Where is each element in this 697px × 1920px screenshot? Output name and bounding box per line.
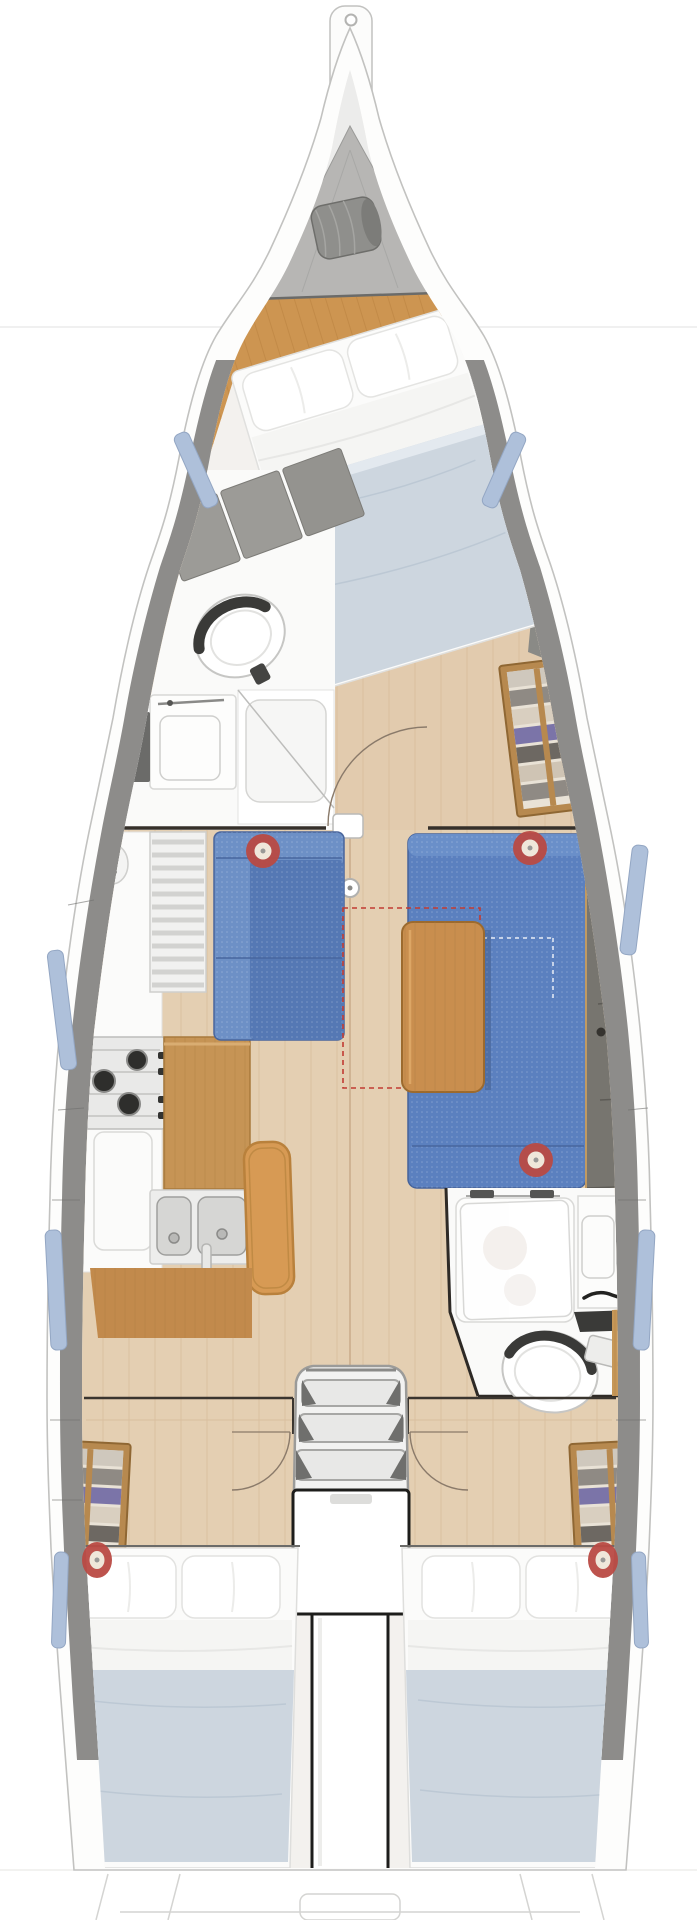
galley-sink xyxy=(150,1190,252,1272)
floor-plan-svg xyxy=(0,0,697,1920)
pillow xyxy=(422,1556,520,1618)
galley-wood-front xyxy=(90,1268,252,1338)
stair-step xyxy=(302,1380,400,1406)
stair-step xyxy=(296,1450,406,1480)
slatted-locker xyxy=(150,832,206,992)
stair-step xyxy=(299,1414,403,1442)
swim-platform-outline xyxy=(96,1874,604,1920)
marker-ring xyxy=(82,1542,112,1578)
hull-window xyxy=(51,1552,68,1648)
aft-berth-sheet xyxy=(408,1620,630,1672)
shower-forward xyxy=(238,690,334,824)
aft-berth-sheet xyxy=(70,1620,292,1672)
marker-ring xyxy=(588,1542,618,1578)
companionway-stairs xyxy=(294,1366,408,1490)
burner xyxy=(127,1050,147,1070)
marker-ring xyxy=(519,1143,553,1177)
hull-window xyxy=(631,1552,648,1648)
marker-ring xyxy=(246,834,280,868)
burner xyxy=(118,1093,140,1115)
shower-aft xyxy=(456,1190,574,1322)
pillow xyxy=(182,1556,280,1618)
cushion-button xyxy=(597,1028,606,1037)
marker-ring xyxy=(513,831,547,865)
engine-box xyxy=(293,1490,409,1614)
boat-floor-plan xyxy=(0,0,697,1920)
salon-table xyxy=(402,922,491,1092)
aft-berth-duvet xyxy=(72,1670,294,1862)
sink-faucet xyxy=(202,1244,211,1272)
aft-berth-duvet xyxy=(406,1670,628,1862)
bow-fitting-ring xyxy=(346,15,357,26)
vanity-aft xyxy=(578,1196,618,1308)
engine-column xyxy=(312,1614,388,1870)
stove xyxy=(80,1037,168,1129)
settee-port xyxy=(214,832,344,1040)
galley-wood-counter xyxy=(164,1037,250,1189)
burner xyxy=(93,1070,115,1092)
